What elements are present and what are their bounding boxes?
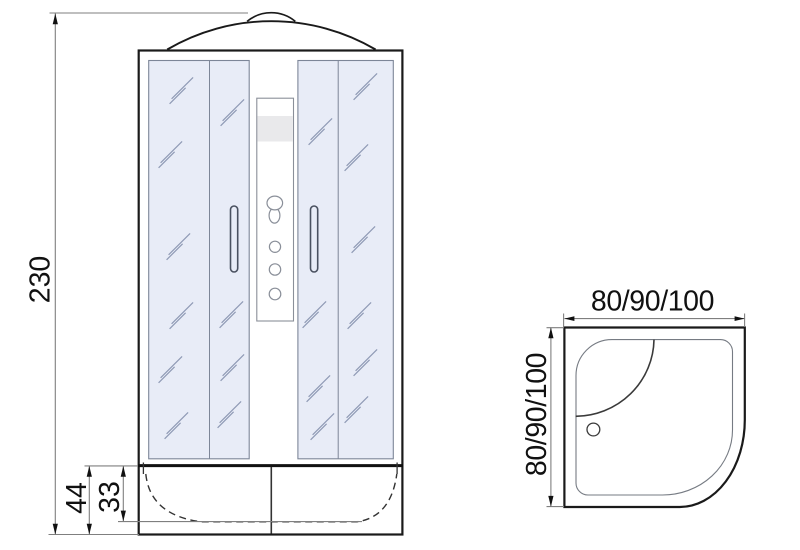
svg-text:230: 230: [25, 256, 57, 304]
svg-text:80/90/100: 80/90/100: [591, 286, 714, 318]
svg-text:80/90/100: 80/90/100: [521, 353, 553, 476]
svg-text:33: 33: [94, 481, 126, 513]
svg-text:44: 44: [61, 482, 93, 514]
